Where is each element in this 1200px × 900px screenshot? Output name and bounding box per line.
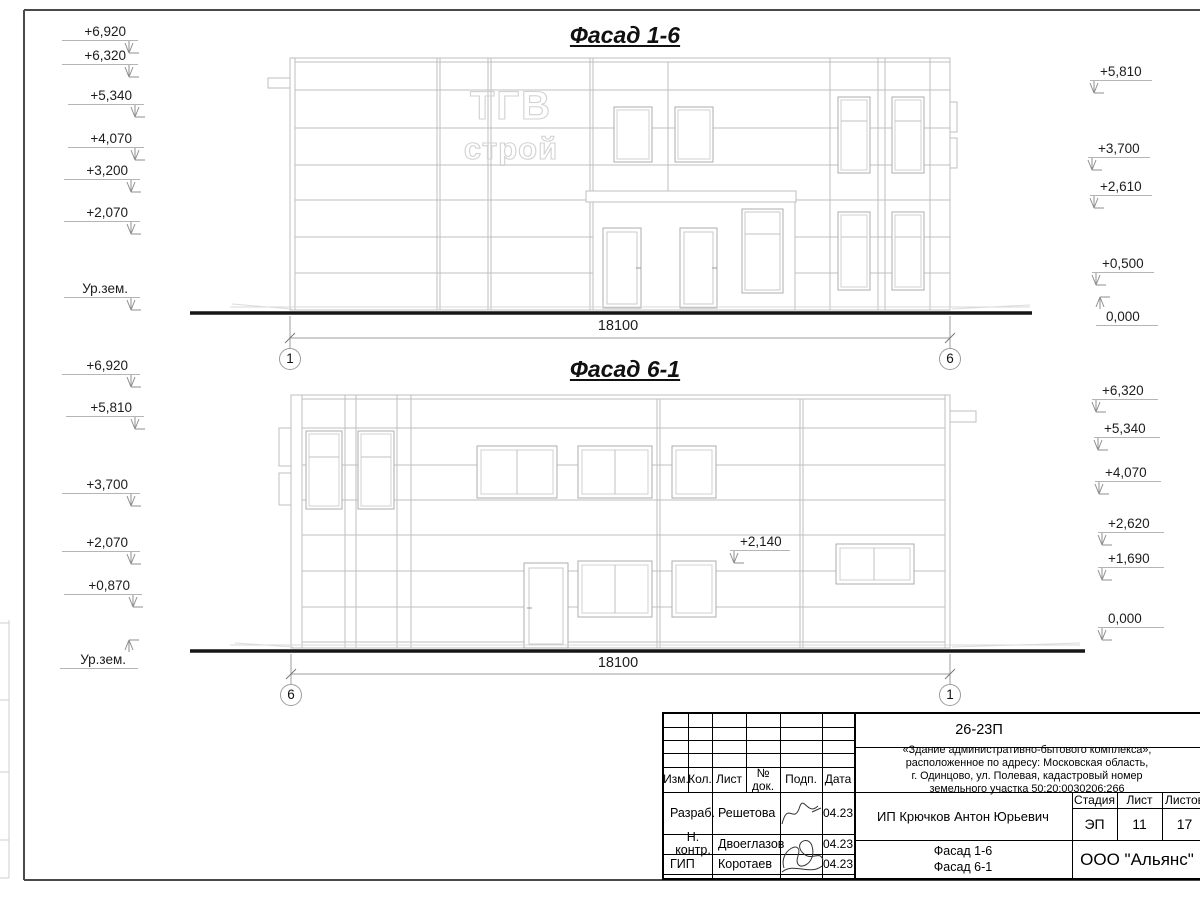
level-arrow-down-icon — [1096, 568, 1113, 582]
elevation-label: +6,920 — [62, 358, 140, 375]
company-name: ООО "Альянс" — [1072, 840, 1200, 878]
elevation-mark: +5,340 — [68, 88, 144, 105]
col-header-list: Лист — [712, 767, 746, 792]
row-name: Двоеглазов — [714, 834, 784, 854]
level-arrow-down-icon — [125, 375, 142, 389]
elevation-mark: +3,200 — [64, 163, 140, 180]
level-arrow-down-icon — [125, 298, 142, 312]
level-arrow-down-icon — [728, 551, 745, 565]
level-arrow-down-icon — [1090, 400, 1107, 414]
row-date: 04.23 — [822, 792, 854, 834]
level-arrow-down-icon — [1093, 482, 1110, 496]
elevation-label: +6,320 — [62, 48, 138, 65]
elevation-label: +2,620 — [1098, 516, 1164, 533]
sheet-value: 11 — [1117, 808, 1162, 840]
project-description: «Здание административно-бытового комплек… — [856, 747, 1198, 792]
row-role: Разраб. — [666, 792, 716, 834]
elevation-label: +2,070 — [62, 535, 140, 552]
level-arrow-down-icon — [1090, 273, 1107, 287]
level-arrow-down-icon — [129, 417, 146, 431]
elevation-label: +0,870 — [64, 578, 142, 595]
elevation-mark: +4,070 — [1095, 465, 1161, 482]
elevation-label: +5,340 — [1094, 421, 1160, 438]
col-header-izm: Изм. — [664, 767, 688, 792]
elevation-mark: Ур.зем. — [64, 281, 140, 298]
axis-bubble-bottom-right: 1 — [939, 687, 961, 702]
row-date: 04.23 — [822, 834, 854, 854]
elevation-mark: 0,000 — [1096, 309, 1158, 326]
level-arrow-down-icon — [1088, 196, 1105, 210]
sign-line-2: строй — [452, 133, 570, 164]
signature-icon — [776, 832, 826, 878]
elevation-label: Ур.зем. — [60, 652, 138, 669]
elevation-label: +5,810 — [66, 400, 144, 417]
elevation-label: +2,140 — [730, 534, 790, 551]
elevation-annotation: +2,140 — [730, 534, 790, 551]
elevation-label: +4,070 — [68, 131, 144, 148]
elevation-label: +5,810 — [1090, 64, 1152, 81]
elevation-mark: +6,920 — [62, 24, 138, 41]
elevation-label: 0,000 — [1096, 309, 1158, 326]
elevation-label: Ур.зем. — [64, 281, 140, 298]
elevation-mark: +6,320 — [62, 48, 138, 65]
elevation-label: 0,000 — [1098, 611, 1164, 628]
stage-label: Стадия — [1072, 792, 1117, 808]
sheet-title-line: Фасад 6-1 — [934, 859, 993, 875]
elevation-mark: +5,340 — [1094, 421, 1160, 438]
sign-line-1: ТГВ — [452, 86, 570, 126]
elevation-mark: +5,810 — [66, 400, 144, 417]
elevation-mark: +2,070 — [64, 205, 140, 222]
row-date: 04.23 — [822, 854, 854, 874]
row-role: ГИП — [666, 854, 716, 874]
level-arrow-down-icon — [1096, 628, 1113, 642]
drawing-sheet: Фасад 1-6 Фасад 6-1 ТГВ строй 18100 1810… — [0, 0, 1200, 900]
elevation-mark: +3,700 — [1088, 141, 1150, 158]
col-header-kol: Кол. — [688, 767, 712, 792]
col-header-data: Дата — [822, 767, 854, 792]
level-arrow-up-icon — [1094, 295, 1111, 309]
elevation-label: +3,200 — [64, 163, 140, 180]
sheet-label: Лист — [1117, 792, 1162, 808]
elevation-label: +6,320 — [1092, 383, 1158, 400]
sheets-value: 17 — [1162, 808, 1200, 840]
level-arrow-down-icon — [125, 180, 142, 194]
axis-bubble-top-right: 6 — [939, 351, 961, 366]
elevation-mark: +0,870 — [64, 578, 142, 595]
level-arrow-down-icon — [123, 65, 140, 79]
title-block: Изм. Кол. Лист № док. Подп. Дата Разраб.… — [662, 712, 1200, 880]
building-sign: ТГВ строй — [452, 86, 570, 164]
facade-bottom-title: Фасад 6-1 — [500, 356, 750, 383]
elevation-mark: +2,610 — [1090, 179, 1152, 196]
signature-icon — [778, 794, 824, 832]
level-arrow-down-icon — [1086, 158, 1103, 172]
elevation-mark: +2,070 — [62, 535, 140, 552]
elevation-mark: +0,500 — [1092, 256, 1154, 273]
stage-value: ЭП — [1072, 808, 1117, 840]
dimension-label-bottom: 18100 — [558, 655, 678, 671]
elevation-label: +3,700 — [1088, 141, 1150, 158]
level-arrow-down-icon — [125, 494, 142, 508]
level-arrow-down-icon — [127, 595, 144, 609]
elevation-mark: +2,620 — [1098, 516, 1164, 533]
level-arrow-down-icon — [129, 105, 146, 119]
sheet-title-line: Фасад 1-6 — [934, 843, 993, 859]
elevation-label: +0,500 — [1092, 256, 1154, 273]
elevation-label: +5,340 — [68, 88, 144, 105]
col-header-podp: Подп. — [780, 767, 822, 792]
col-header-doc: № док. — [746, 767, 780, 792]
elevation-mark: +5,810 — [1090, 64, 1152, 81]
elevation-label: +3,700 — [62, 477, 140, 494]
level-arrow-up-icon — [123, 638, 140, 652]
project-code: 26-23П — [854, 714, 1104, 747]
facade-top-title: Фасад 1-6 — [500, 22, 750, 49]
row-name: Решетова — [714, 792, 784, 834]
level-arrow-down-icon — [1096, 533, 1113, 547]
axis-bubble-top-left: 1 — [279, 351, 301, 366]
axis-bubble-bottom-left: 6 — [280, 687, 302, 702]
client-name: ИП Крючков Антон Юрьевич — [854, 792, 1072, 840]
elevation-mark: +3,700 — [62, 477, 140, 494]
sheet-title: Фасад 1-6 Фасад 6-1 — [854, 840, 1072, 878]
level-arrow-down-icon — [125, 222, 142, 236]
elevation-label: +6,920 — [62, 24, 138, 41]
elevation-label: +2,070 — [64, 205, 140, 222]
description-line: г. Одинцово, ул. Полевая, кадастровый но… — [911, 770, 1142, 783]
elevation-mark: Ур.зем. — [60, 652, 138, 669]
level-arrow-down-icon — [125, 552, 142, 566]
level-arrow-down-icon — [129, 148, 146, 162]
sheets-label: Листов — [1162, 792, 1200, 808]
description-line: расположенное по адресу: Московская обла… — [906, 757, 1149, 770]
elevation-mark: +6,920 — [62, 358, 140, 375]
level-arrow-down-icon — [1088, 81, 1105, 95]
elevation-label: +4,070 — [1095, 465, 1161, 482]
description-line: «Здание административно-бытового комплек… — [903, 744, 1152, 757]
dimension-label-top: 18100 — [558, 318, 678, 334]
elevation-mark: +4,070 — [68, 131, 144, 148]
elevation-label: +1,690 — [1098, 551, 1164, 568]
elevation-label: +2,610 — [1090, 179, 1152, 196]
elevation-mark: +1,690 — [1098, 551, 1164, 568]
level-arrow-down-icon — [1092, 438, 1109, 452]
row-name: Коротаев — [714, 854, 784, 874]
row-role: Н. контр. — [666, 834, 716, 854]
elevation-mark: 0,000 — [1098, 611, 1164, 628]
elevation-mark: +6,320 — [1092, 383, 1158, 400]
